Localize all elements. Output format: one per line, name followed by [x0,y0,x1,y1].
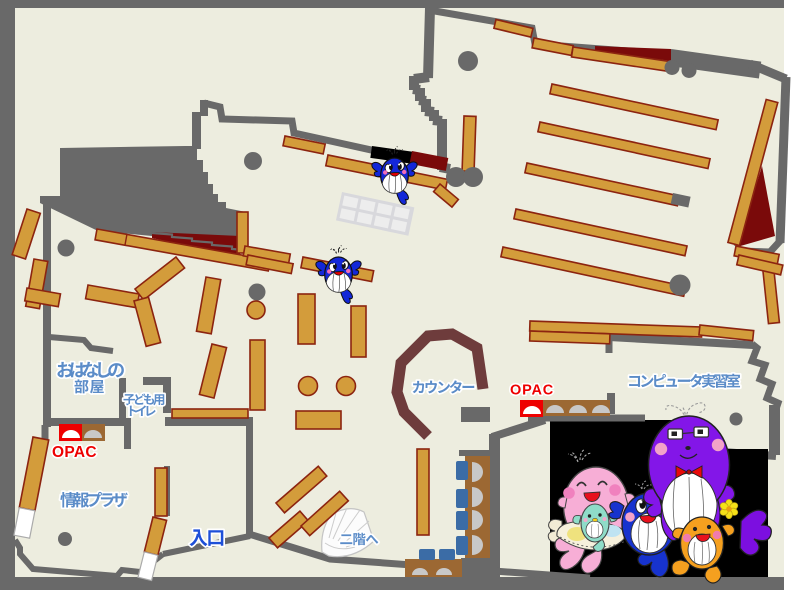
svg-text:OPAC: OPAC [510,383,554,399]
svg-text:OPAC: OPAC [52,444,97,461]
